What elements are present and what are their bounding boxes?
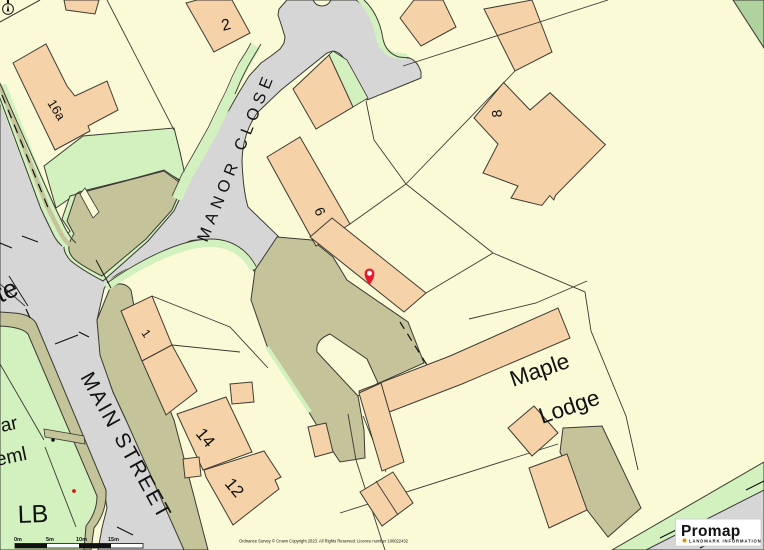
svg-text:5m: 5m: [46, 537, 54, 543]
svg-text:8: 8: [488, 109, 505, 118]
svg-text:Promap: Promap: [681, 523, 741, 540]
svg-text:LB: LB: [17, 500, 49, 529]
svg-text:LANDMARK INFORMATION: LANDMARK INFORMATION: [689, 539, 762, 544]
svg-text:0m: 0m: [14, 537, 22, 543]
svg-text:15m: 15m: [108, 537, 119, 543]
svg-text:Ordnance Survey © Crown Copyri: Ordnance Survey © Crown Copyright 2023. …: [239, 539, 409, 544]
svg-text:10m: 10m: [76, 537, 87, 543]
